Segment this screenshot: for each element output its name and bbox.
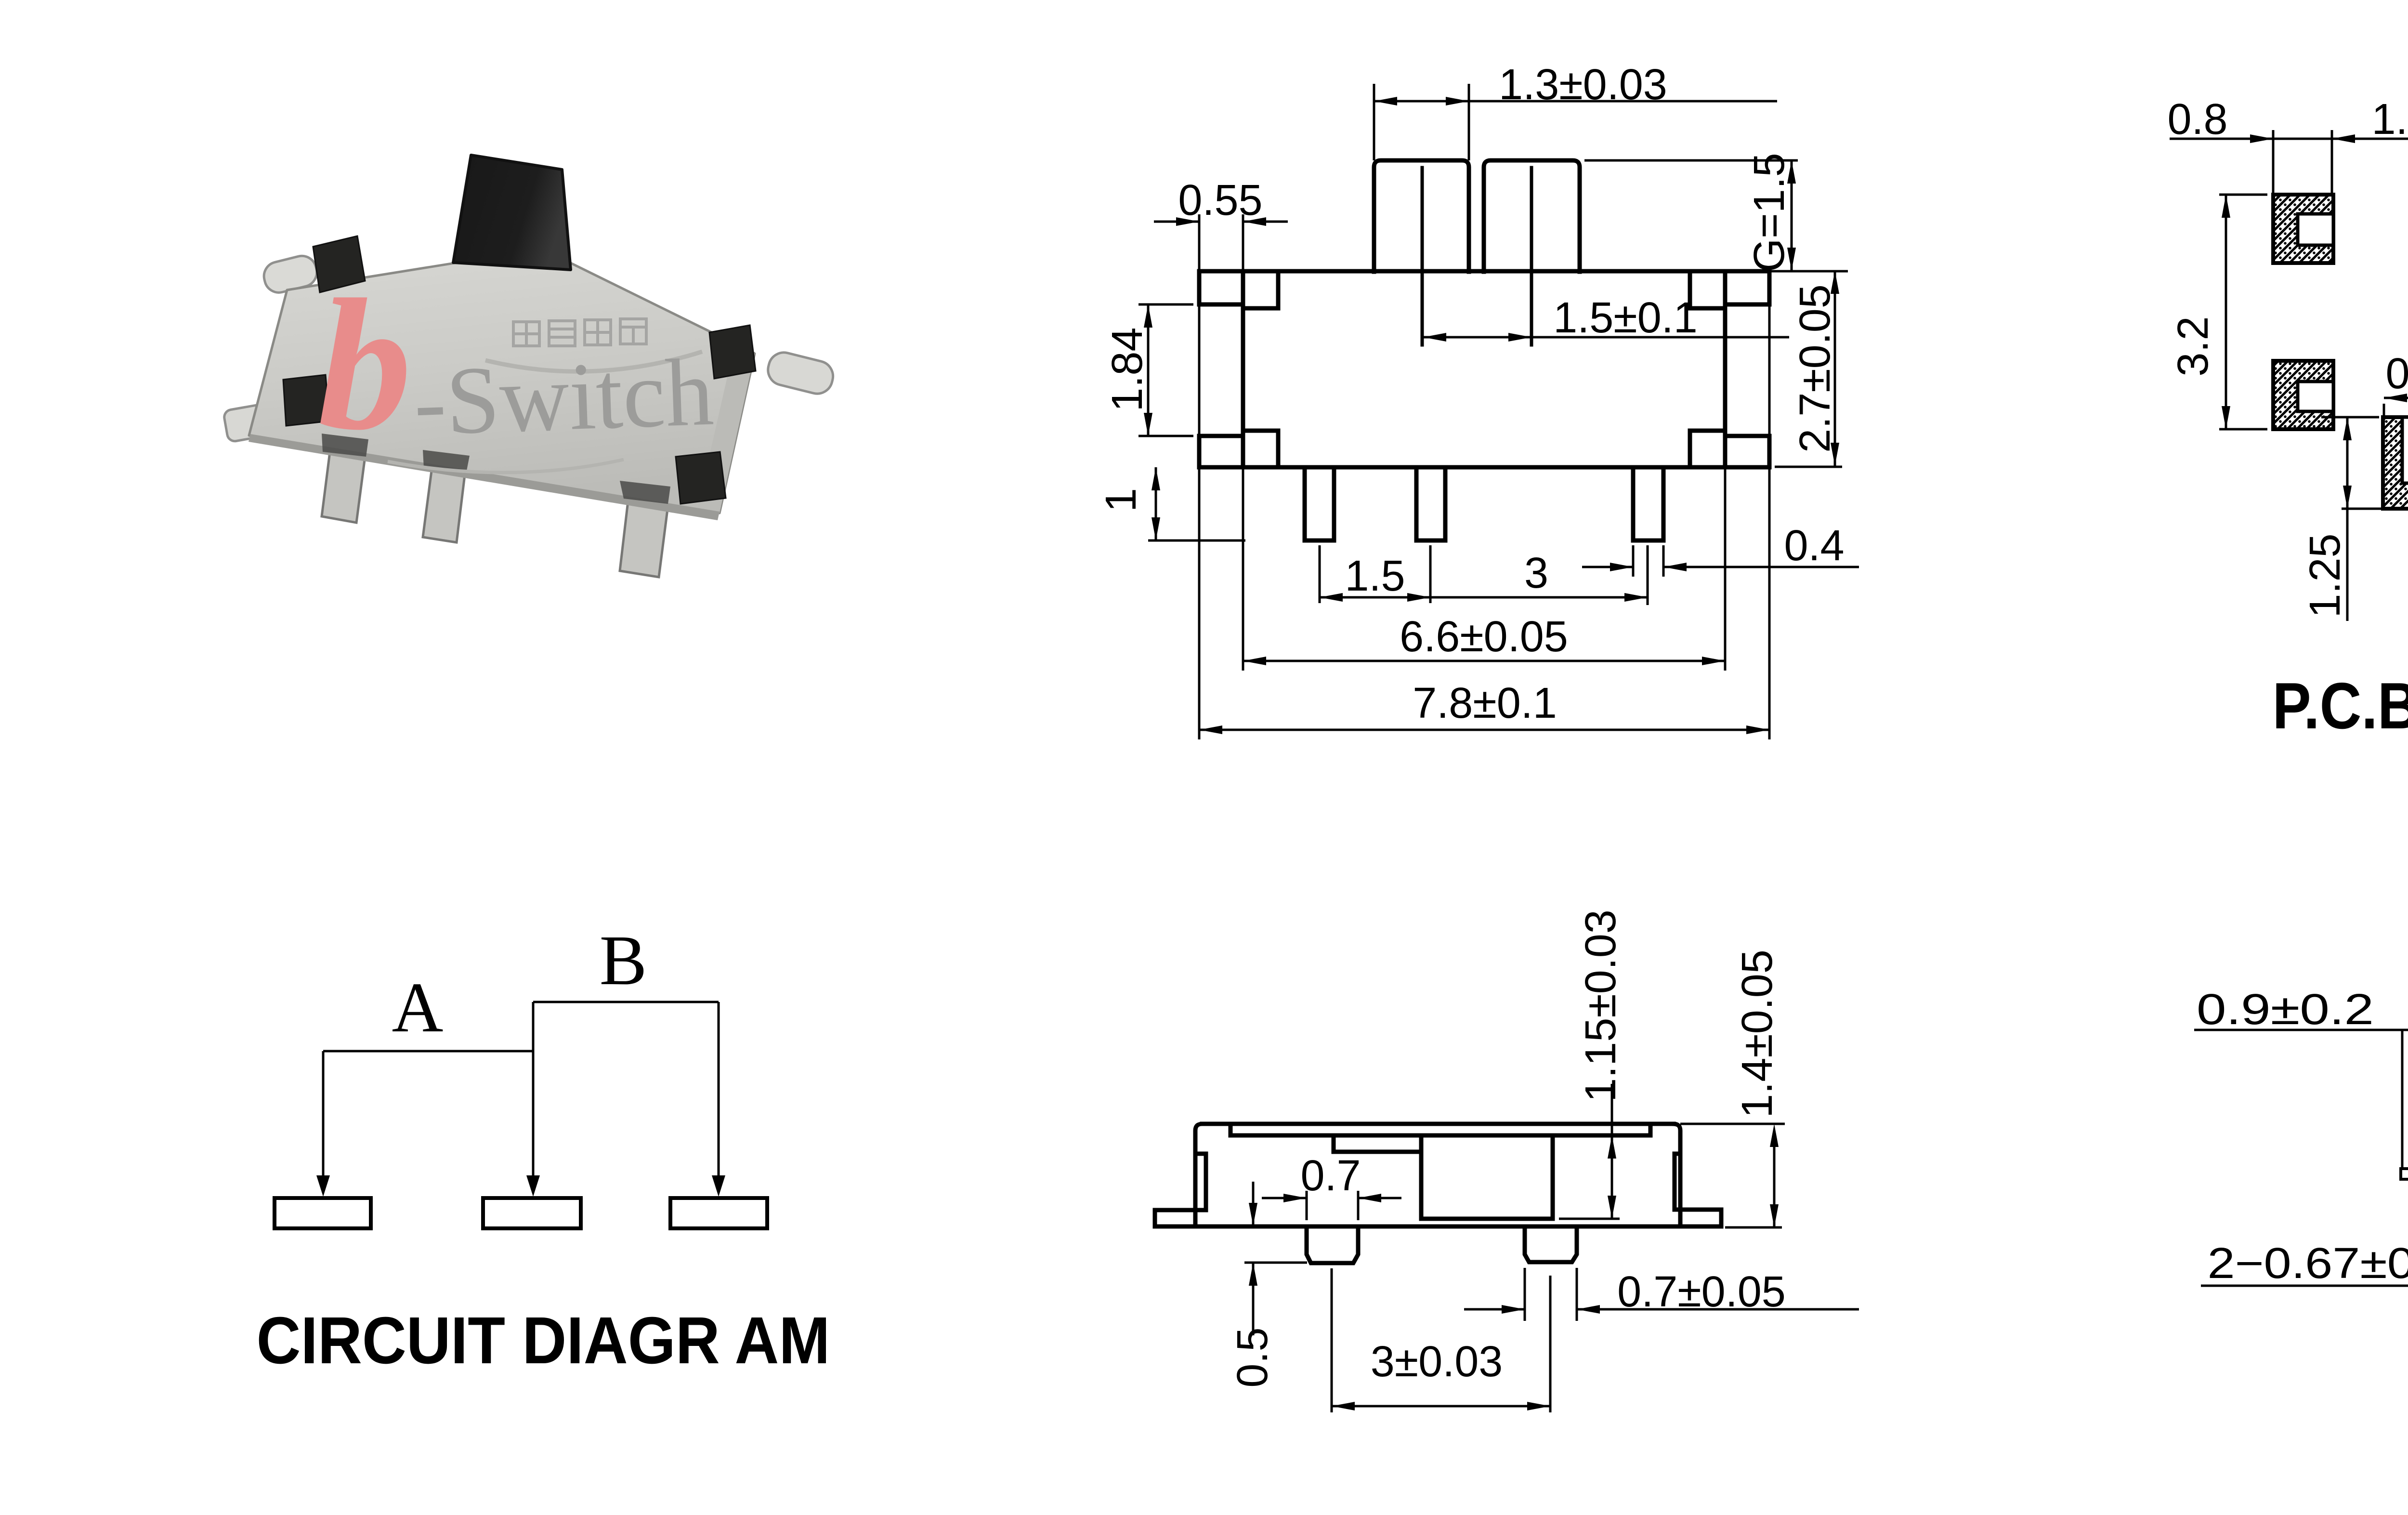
svg-text:1.5: 1.5 — [1345, 552, 1405, 600]
svg-text:1.5±0.1: 1.5±0.1 — [1553, 294, 1698, 342]
svg-text:3: 3 — [1524, 549, 1548, 597]
svg-text:1.15±0.03: 1.15±0.03 — [1577, 909, 1625, 1102]
svg-text:P.C.B LAND DIMENSION: P.C.B LAND DIMENSION — [2273, 669, 2408, 742]
svg-text:1.4±0.05: 1.4±0.05 — [1733, 949, 1781, 1118]
svg-text:6.6±0.05: 6.6±0.05 — [1400, 613, 1568, 661]
svg-text:0.9: 0.9 — [2385, 350, 2408, 398]
svg-text:0.7±0.05: 0.7±0.05 — [1617, 1268, 1786, 1316]
svg-text:G=1.5: G=1.5 — [1745, 153, 1793, 272]
svg-text:CIRCUIT DIAGR AM: CIRCUIT DIAGR AM — [257, 1304, 830, 1378]
svg-text:0.55: 0.55 — [1178, 176, 1262, 224]
svg-text:3.2: 3.2 — [2169, 316, 2217, 376]
svg-text:7.8±0.1: 7.8±0.1 — [1413, 679, 1557, 727]
svg-text:0.4: 0.4 — [1784, 522, 1844, 570]
svg-text:1.3±0.03: 1.3±0.03 — [1499, 61, 1667, 109]
svg-text:-Switch: -Switch — [412, 339, 716, 456]
svg-text:A: A — [392, 968, 444, 1047]
svg-text:0.5: 0.5 — [1229, 1327, 1277, 1387]
svg-text:1.84: 1.84 — [1103, 327, 1152, 411]
svg-text:2.7±0.05: 2.7±0.05 — [1791, 284, 1839, 453]
svg-text:2−0.67±0.05: 2−0.67±0.05 — [2208, 1239, 2408, 1288]
svg-text:1.25: 1.25 — [2301, 533, 2349, 618]
svg-text:0.8: 0.8 — [2167, 95, 2227, 144]
svg-text:3±0.03: 3±0.03 — [1371, 1338, 1503, 1386]
svg-text:0.9±0.2: 0.9±0.2 — [2197, 986, 2374, 1034]
svg-text:B: B — [600, 921, 647, 1000]
svg-text:1.9: 1.9 — [2371, 95, 2408, 144]
svg-text:0.7: 0.7 — [1300, 1152, 1361, 1200]
svg-text:b: b — [318, 261, 412, 469]
svg-text:1: 1 — [1097, 488, 1145, 512]
